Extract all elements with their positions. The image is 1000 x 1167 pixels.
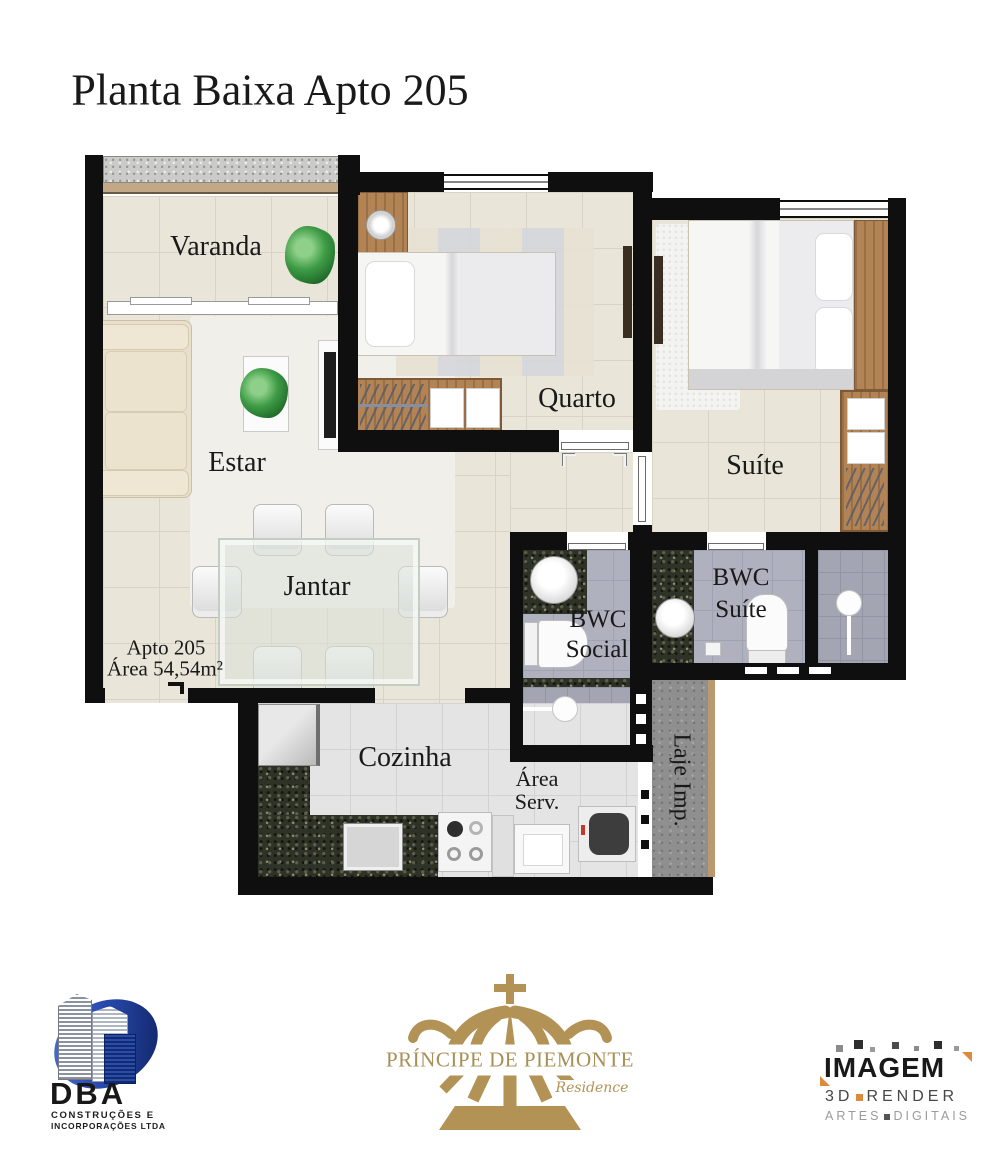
floor-plan-page: Planta Baixa Apto 205 <box>0 0 1000 1167</box>
vent-dash <box>636 734 646 744</box>
balcony-sill <box>103 183 355 194</box>
sofa-cushion <box>105 351 187 412</box>
bwc-suite-sink <box>655 598 695 638</box>
kitchen-sink <box>344 824 402 870</box>
vent-dash <box>636 694 646 704</box>
double-bed <box>688 220 854 390</box>
vent-dash <box>809 667 831 674</box>
pillow <box>815 233 853 301</box>
label-bwc-suite-1: BWC <box>713 564 770 592</box>
dba-name: DBA <box>50 1076 195 1112</box>
folded-clothes <box>466 388 500 428</box>
pixel-square <box>854 1040 863 1049</box>
sofa-cushion <box>105 412 187 470</box>
imagem-line1: 3DRENDER <box>825 1088 958 1106</box>
toilet-tank <box>524 622 538 666</box>
label-varanda: Varanda <box>170 231 262 263</box>
sliding-door-panel <box>130 297 192 305</box>
washing-machine <box>578 806 636 862</box>
folded-towels <box>847 432 885 464</box>
pillow <box>365 261 415 347</box>
pixel-square <box>914 1046 919 1051</box>
door-swing <box>563 454 576 467</box>
piemonte-logo: PRÍNCIPE DE PIEMONTE Residence <box>385 972 635 1137</box>
suite-window <box>780 200 888 218</box>
suite-mirror <box>654 256 663 344</box>
laundry-tank <box>514 824 570 874</box>
closet-rod <box>358 404 428 407</box>
hanging-clothes <box>360 384 426 431</box>
label-laje: Laje Imp. <box>668 733 695 826</box>
label-bwc-social-2: Social <box>566 636 629 664</box>
pixel-square <box>954 1046 959 1051</box>
duvet-fold <box>749 221 767 389</box>
wall <box>510 745 653 762</box>
bedroom-door <box>561 442 629 450</box>
wall <box>85 688 105 703</box>
imagem-line1-a: 3D <box>825 1088 853 1105</box>
imagem-name: IMAGEM <box>824 1052 945 1084</box>
sofa <box>88 320 192 498</box>
pixel-square <box>934 1041 942 1049</box>
label-suite: Suíte <box>726 450 784 482</box>
hanging-clothes <box>846 468 884 526</box>
burner <box>447 847 461 861</box>
entry-door-swing <box>168 682 184 694</box>
laje-edge <box>708 680 715 877</box>
imagem-line1-b: RENDER <box>866 1088 958 1105</box>
stove <box>438 812 492 872</box>
wall <box>630 550 652 680</box>
wall <box>338 192 358 452</box>
sliding-door-panel <box>248 297 310 305</box>
living-plant <box>240 368 288 418</box>
dba-logo: DBA CONSTRUÇÕES E INCORPORAÇÕES LTDA <box>46 988 201 1128</box>
wall <box>652 198 780 220</box>
door-swing <box>613 454 626 467</box>
bedroom-mirror <box>623 246 632 338</box>
label-quarto: Quarto <box>538 383 616 415</box>
lamp <box>366 210 396 240</box>
bwc-social-door <box>568 543 626 550</box>
label-apto-area: Área 54,54m² <box>107 657 223 682</box>
bedroom-wardrobe <box>354 378 502 437</box>
wall <box>628 532 707 550</box>
duvet-fold <box>445 253 461 355</box>
wall <box>888 198 906 680</box>
label-area-serv-2: Serv. <box>515 789 559 815</box>
washer-detail <box>581 825 585 835</box>
shower-head <box>552 696 578 722</box>
bwc-social-sink <box>530 556 578 604</box>
wall <box>630 663 906 680</box>
wall <box>238 703 258 877</box>
single-bed <box>356 252 556 356</box>
balcony-plant <box>285 226 335 284</box>
vent-dash <box>745 667 767 674</box>
imagem-logo: IMAGEM 3DRENDER ARTESDIGITAIS <box>816 1040 976 1128</box>
door-dash <box>641 840 649 849</box>
label-jantar: Jantar <box>284 571 351 603</box>
tank-basin <box>523 834 563 866</box>
burner <box>469 821 483 835</box>
dba-line2: INCORPORAÇÕES LTDA <box>51 1121 201 1131</box>
bath-accessory <box>705 642 721 656</box>
wall <box>548 172 653 192</box>
suite-wardrobe <box>840 390 890 532</box>
imagem-line2-b: DIGITAIS <box>893 1109 970 1123</box>
wall <box>766 532 888 550</box>
wall <box>238 877 713 895</box>
label-estar: Estar <box>208 447 266 479</box>
orange-corner <box>962 1052 972 1062</box>
imagem-line2: ARTESDIGITAIS <box>825 1109 970 1123</box>
bed-runner <box>689 369 853 389</box>
door-dash <box>641 790 649 799</box>
shower-head <box>836 590 862 616</box>
refrigerator <box>258 704 320 766</box>
suite-headboard <box>854 220 890 390</box>
shower-curb <box>523 678 630 687</box>
counter-segment <box>492 815 514 877</box>
dba-tower <box>58 994 92 1080</box>
page-title: Planta Baixa Apto 205 <box>71 65 468 116</box>
bwc-suite-door <box>708 543 764 550</box>
balcony-railing <box>103 156 355 183</box>
washer-lid <box>589 813 629 855</box>
dark-dot <box>884 1114 890 1120</box>
folded-clothes <box>430 388 464 428</box>
orange-dot <box>856 1094 863 1101</box>
vent-dash <box>777 667 799 674</box>
bedroom-window <box>444 174 548 190</box>
wall <box>510 532 523 762</box>
piemonte-subtitle: Residence <box>553 1080 632 1096</box>
wall <box>465 688 523 703</box>
pillow <box>815 307 853 375</box>
pixel-square <box>892 1042 899 1049</box>
wall <box>358 430 559 452</box>
dba-line1: CONSTRUÇÕES E <box>51 1110 201 1121</box>
burner <box>469 847 483 861</box>
wall <box>188 688 375 703</box>
label-cozinha: Cozinha <box>358 742 451 774</box>
tv <box>324 352 336 438</box>
dining-table <box>218 538 420 686</box>
burner <box>447 821 463 837</box>
wall <box>352 172 444 192</box>
door-dash <box>641 815 649 824</box>
piemonte-name: PRÍNCIPE DE PIEMONTE <box>380 1045 640 1076</box>
imagem-line2-a: ARTES <box>825 1109 881 1123</box>
suite-door <box>638 456 646 522</box>
wall <box>805 550 818 663</box>
wall <box>85 155 103 703</box>
sofa-armrest <box>93 470 189 496</box>
wall <box>633 190 652 452</box>
label-bwc-suite-2: Suíte <box>715 596 766 624</box>
folded-towels <box>847 398 885 430</box>
sofa-armrest <box>93 324 189 350</box>
toilet-tank <box>748 650 786 664</box>
vent-dash <box>636 714 646 724</box>
pixel-square <box>836 1045 843 1052</box>
label-bwc-social-1: BWC <box>570 606 627 634</box>
